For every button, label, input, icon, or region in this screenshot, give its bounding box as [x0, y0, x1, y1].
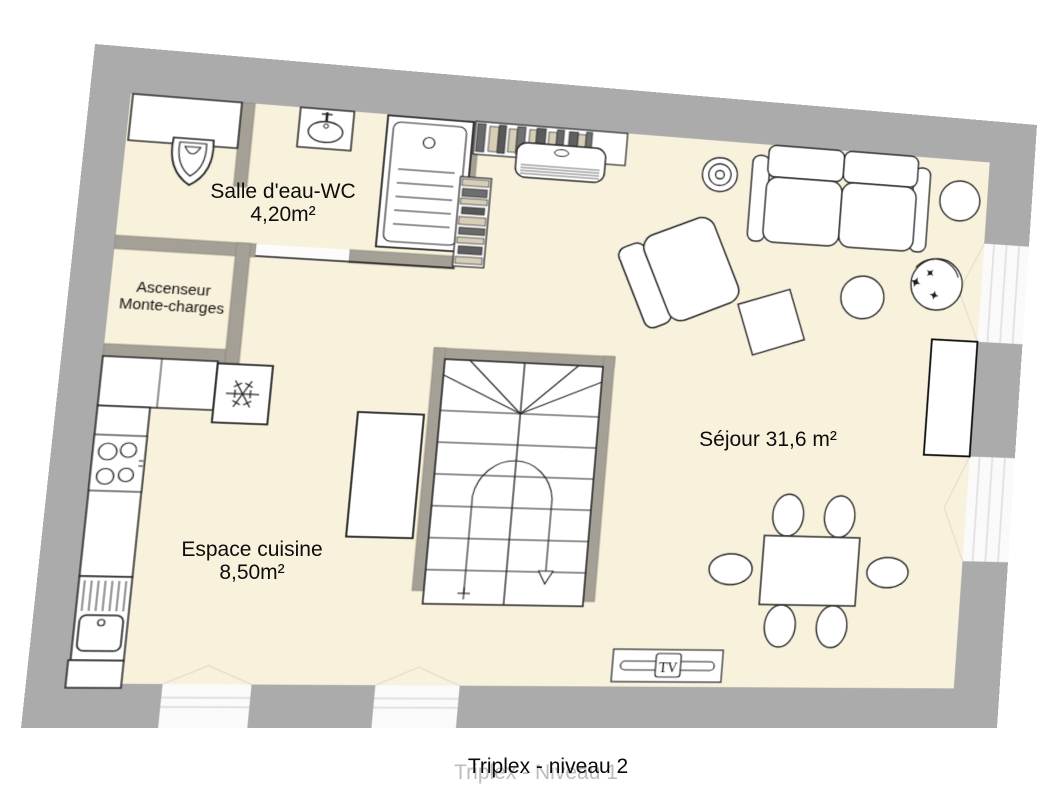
label-bathroom-area: 4,20m²	[210, 203, 355, 226]
staircase	[423, 359, 603, 606]
floorplan-canvas: Ascenseur Monte-charges	[0, 0, 1054, 791]
label-living-name: Séjour 31,6 m²	[699, 428, 837, 451]
dining-table	[759, 535, 860, 606]
label-kitchen: Espace cuisine 8,50m²	[181, 538, 322, 584]
label-kitchen-area: 8,50m²	[181, 561, 322, 584]
bathroom-sink	[297, 107, 355, 150]
plan-title: Triplex - niveau 2	[468, 755, 628, 779]
label-living: Séjour 31,6 m²	[699, 428, 837, 451]
cooktop	[89, 434, 148, 492]
tv-unit: TV	[611, 649, 723, 682]
fridge	[212, 363, 273, 424]
tall-cabinet	[924, 339, 978, 456]
svg-text:TV: TV	[658, 660, 678, 675]
sofa	[747, 144, 932, 253]
heater-unit	[515, 142, 607, 183]
dresser	[346, 412, 424, 538]
label-kitchen-name: Espace cuisine	[181, 538, 322, 561]
label-bathroom-name: Salle d'eau-WC	[210, 180, 355, 203]
label-bathroom: Salle d'eau-WC 4,20m²	[210, 180, 355, 226]
floorplan-drawing: Ascenseur Monte-charges	[21, 44, 1037, 728]
plan-title-ghost: Triplex - Niveau 1	[454, 761, 618, 785]
